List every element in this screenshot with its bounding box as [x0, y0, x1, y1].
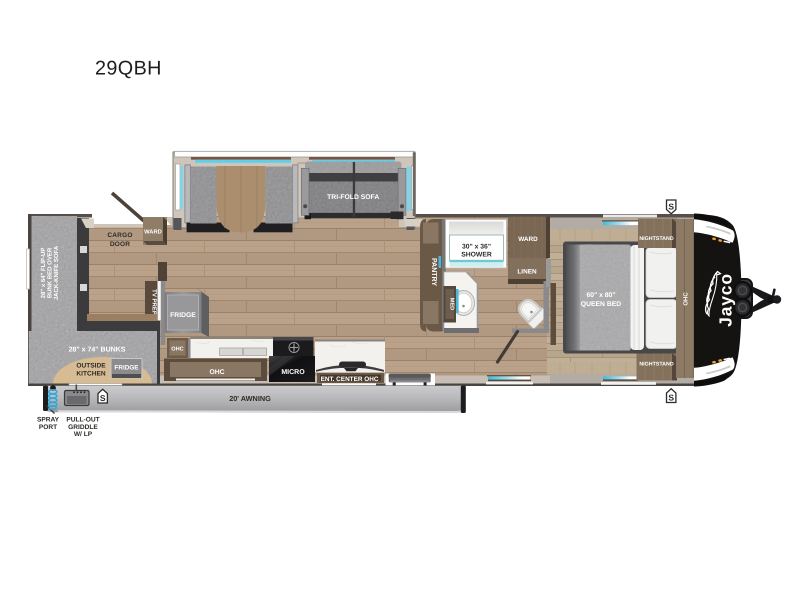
- svg-text:W/ LP: W/ LP: [74, 431, 93, 438]
- svg-text:CARGO: CARGO: [107, 232, 132, 239]
- svg-text:Jayco: Jayco: [716, 273, 736, 327]
- svg-text:TV PREP: TV PREP: [151, 289, 158, 315]
- svg-text:ENT. CENTER OHC: ENT. CENTER OHC: [321, 376, 379, 383]
- svg-text:FRIDGE: FRIDGE: [114, 365, 139, 372]
- svg-text:WARD: WARD: [518, 236, 538, 243]
- svg-text:KITCHEN: KITCHEN: [76, 371, 106, 378]
- svg-text:S: S: [668, 393, 674, 403]
- svg-text:NIGHTSTAND: NIGHTSTAND: [639, 236, 674, 242]
- svg-text:60" x 80": 60" x 80": [586, 292, 615, 299]
- svg-text:QUEEN BED: QUEEN BED: [581, 301, 622, 308]
- svg-text:S: S: [100, 393, 106, 403]
- svg-text:LINEN: LINEN: [517, 269, 537, 276]
- svg-text:MICRO: MICRO: [281, 369, 305, 376]
- svg-text:20' AWNING: 20' AWNING: [229, 394, 271, 403]
- svg-text:PANTRY: PANTRY: [430, 258, 437, 286]
- svg-text:MED: MED: [449, 298, 455, 310]
- svg-text:DOOR: DOOR: [110, 241, 130, 248]
- svg-text:GRIDDLE: GRIDDLE: [68, 424, 98, 431]
- svg-text:28" x 64" FLIP-UPBUNK BED OVER: 28" x 64" FLIP-UPBUNK BED OVERJACK-KNIFE…: [40, 245, 60, 300]
- svg-text:NIGHTSTAND: NIGHTSTAND: [639, 362, 674, 368]
- svg-text:28" x 74" BUNKS: 28" x 74" BUNKS: [69, 347, 126, 354]
- svg-text:S: S: [668, 202, 674, 212]
- svg-text:SHOWER: SHOWER: [461, 251, 492, 258]
- svg-text:OUTSIDE: OUTSIDE: [76, 363, 106, 370]
- svg-text:OHC: OHC: [683, 292, 690, 306]
- svg-text:WARD: WARD: [144, 230, 162, 236]
- svg-text:29QBH: 29QBH: [95, 58, 162, 80]
- svg-text:SPRAY: SPRAY: [37, 417, 60, 424]
- svg-text:FRIDGE: FRIDGE: [170, 312, 196, 319]
- svg-text:PORT: PORT: [39, 424, 57, 431]
- svg-text:PULL-OUT: PULL-OUT: [66, 417, 99, 424]
- svg-text:TRI-FOLD SOFA: TRI-FOLD SOFA: [327, 194, 379, 201]
- svg-text:OHC: OHC: [209, 369, 224, 376]
- svg-text:30" x 36": 30" x 36": [462, 243, 491, 250]
- svg-text:OHC: OHC: [171, 347, 183, 353]
